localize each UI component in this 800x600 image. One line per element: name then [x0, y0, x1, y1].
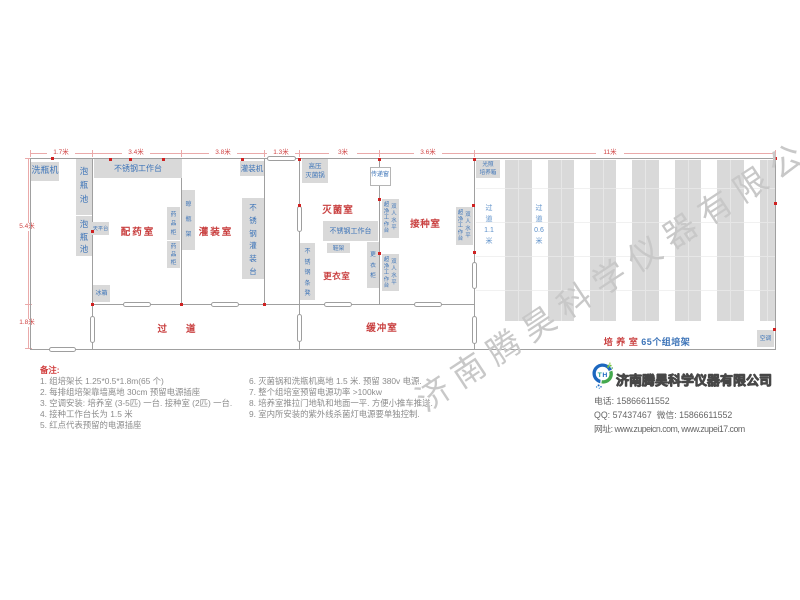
svg-text:H: H	[602, 372, 607, 379]
